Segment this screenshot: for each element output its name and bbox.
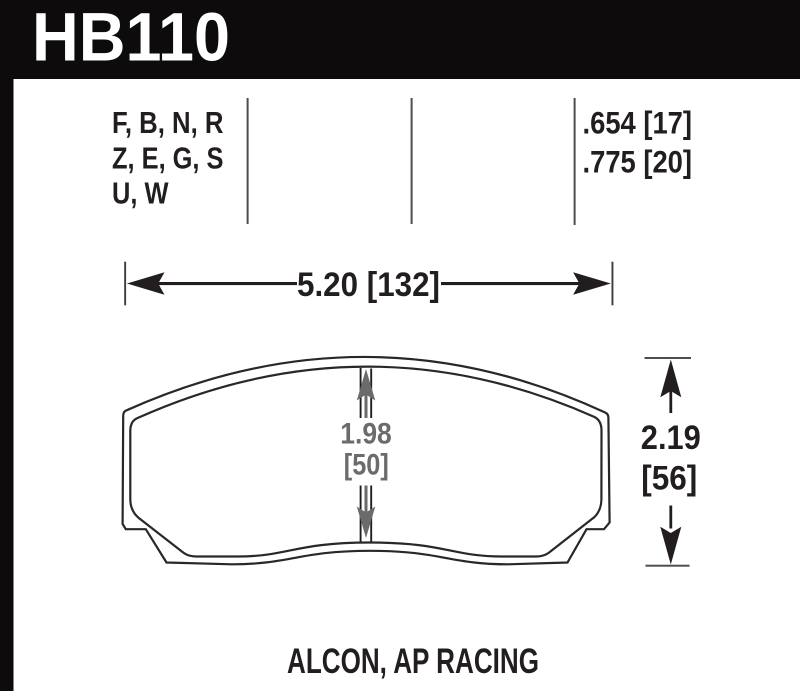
svg-text:Z, E, G, S: Z, E, G, S	[112, 141, 224, 176]
svg-text:2.19: 2.19	[641, 419, 701, 457]
svg-text:.775 [20]: .775 [20]	[583, 144, 693, 180]
svg-text:U, W: U, W	[112, 176, 169, 211]
svg-text:1.98: 1.98	[340, 418, 392, 451]
svg-text:HB110: HB110	[32, 0, 230, 76]
svg-text:5.20 [132]: 5.20 [132]	[297, 266, 440, 304]
svg-text:[50]: [50]	[344, 449, 389, 482]
svg-text:.654 [17]: .654 [17]	[583, 105, 693, 141]
svg-text:F, B, N, R: F, B, N, R	[112, 105, 224, 140]
svg-text:[56]: [56]	[641, 460, 697, 498]
svg-text:ALCON, AP RACING: ALCON, AP RACING	[287, 641, 539, 681]
